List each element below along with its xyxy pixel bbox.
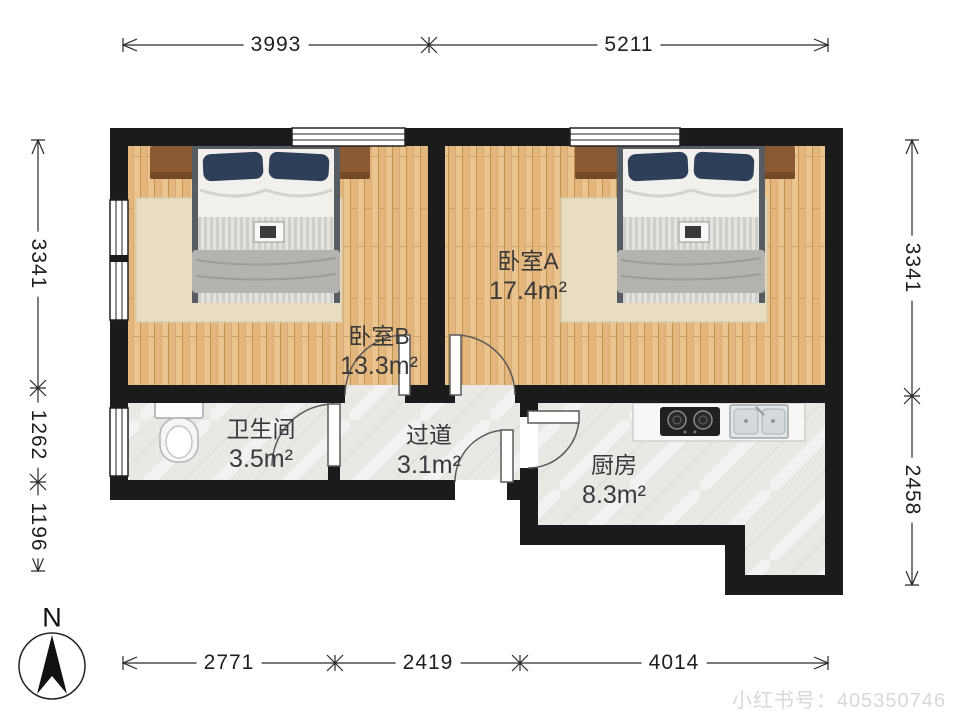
room-label-kitchen: 厨房 8.3m² — [582, 451, 646, 511]
dimension-right-1: 3341 — [900, 236, 924, 301]
floor-plan-drawing — [0, 0, 960, 722]
dimension-bottom-2: 2419 — [396, 651, 461, 675]
dimension-left-2: 1262 — [26, 403, 50, 468]
room-label-bedroom-a: 卧室A 17.4m² — [489, 247, 567, 307]
wall-bottom-left — [110, 480, 455, 500]
window-icon — [110, 200, 128, 320]
floor-plan-page: 3993 5211 2771 2419 4014 3341 1262 1196 … — [0, 0, 960, 722]
window-icon — [570, 128, 680, 146]
watermark-text: 小红书号：405350746 — [732, 684, 946, 713]
wall-kitchen-bottom-left — [520, 525, 745, 545]
room-label-bedroom-b: 卧室B 13.3m² — [340, 322, 418, 382]
dimension-bottom-1: 2771 — [197, 651, 262, 675]
wall-top — [110, 128, 843, 146]
dimension-left-1: 3341 — [26, 232, 50, 297]
bed-icon — [136, 146, 370, 322]
kitchen-counter — [633, 403, 805, 441]
room-label-bathroom: 卫生间 3.5m² — [227, 415, 296, 475]
wall-kitchen-bottom-right — [725, 575, 843, 595]
sink-icon — [730, 405, 788, 438]
north-arrow-icon — [19, 633, 85, 699]
room-name: 卫生间 — [227, 415, 296, 444]
room-area: 8.3m² — [582, 480, 646, 511]
room-name: 过道 — [397, 421, 461, 450]
wall-mid-left — [110, 385, 345, 403]
room-area: 17.4m² — [489, 276, 567, 307]
wall-right — [825, 128, 843, 595]
dimension-top-1: 3993 — [244, 33, 309, 57]
toilet-icon — [155, 402, 203, 462]
stove-icon — [660, 407, 720, 436]
room-name: 卧室B — [340, 322, 418, 351]
wall-mid-right — [515, 385, 843, 403]
room-label-hallway: 过道 3.1m² — [397, 421, 461, 481]
wall-bedroom-divider — [428, 128, 445, 403]
wall-mid-center — [405, 385, 455, 403]
room-area: 13.3m² — [340, 351, 418, 382]
room-area: 3.5m² — [227, 444, 296, 475]
window-icon — [110, 408, 128, 476]
dimension-right-2: 2458 — [900, 458, 924, 523]
north-label: N — [42, 603, 62, 634]
bed-icon — [561, 146, 795, 322]
dimension-bottom-3: 4014 — [642, 651, 707, 675]
dimension-top-2: 5211 — [597, 33, 660, 57]
room-name: 厨房 — [582, 451, 646, 480]
room-name: 卧室A — [489, 247, 567, 276]
kitchen-floor-extension — [745, 525, 825, 575]
dimension-line-top — [123, 37, 828, 53]
window-icon — [292, 128, 405, 146]
room-area: 3.1m² — [397, 450, 461, 481]
dimension-left-3: 1196 — [26, 495, 50, 558]
